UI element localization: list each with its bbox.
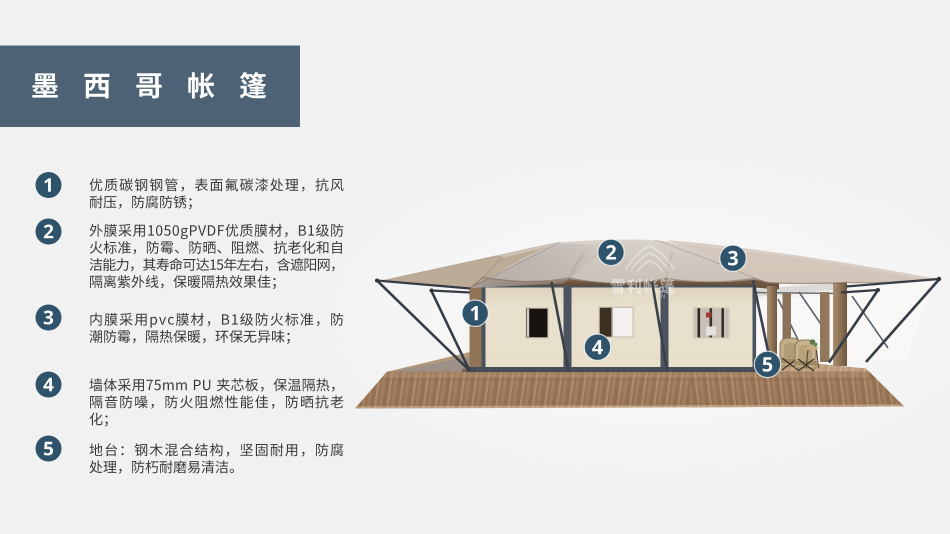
svg-text:XUELI TENT: XUELI TENT (614, 294, 673, 301)
